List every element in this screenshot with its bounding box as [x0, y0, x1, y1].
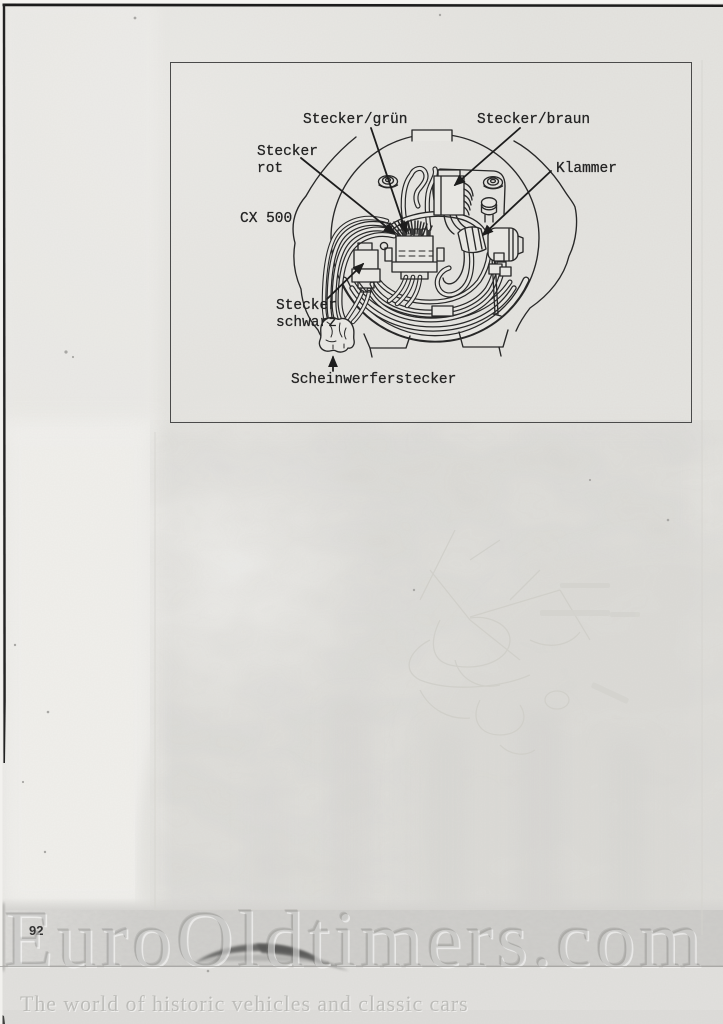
svg-text:schwarz: schwarz [276, 315, 337, 331]
svg-text:Scheinwerferstecker: Scheinwerferstecker [291, 372, 456, 388]
svg-text:Stecker/grün: Stecker/grün [303, 112, 407, 128]
svg-text:rot: rot [257, 161, 283, 177]
svg-text:Stecker/braun: Stecker/braun [477, 112, 590, 128]
svg-text:Stecker: Stecker [276, 298, 337, 314]
svg-text:Stecker: Stecker [257, 144, 318, 160]
svg-text:Klammer: Klammer [556, 161, 617, 177]
svg-text:CX 500: CX 500 [240, 211, 292, 227]
